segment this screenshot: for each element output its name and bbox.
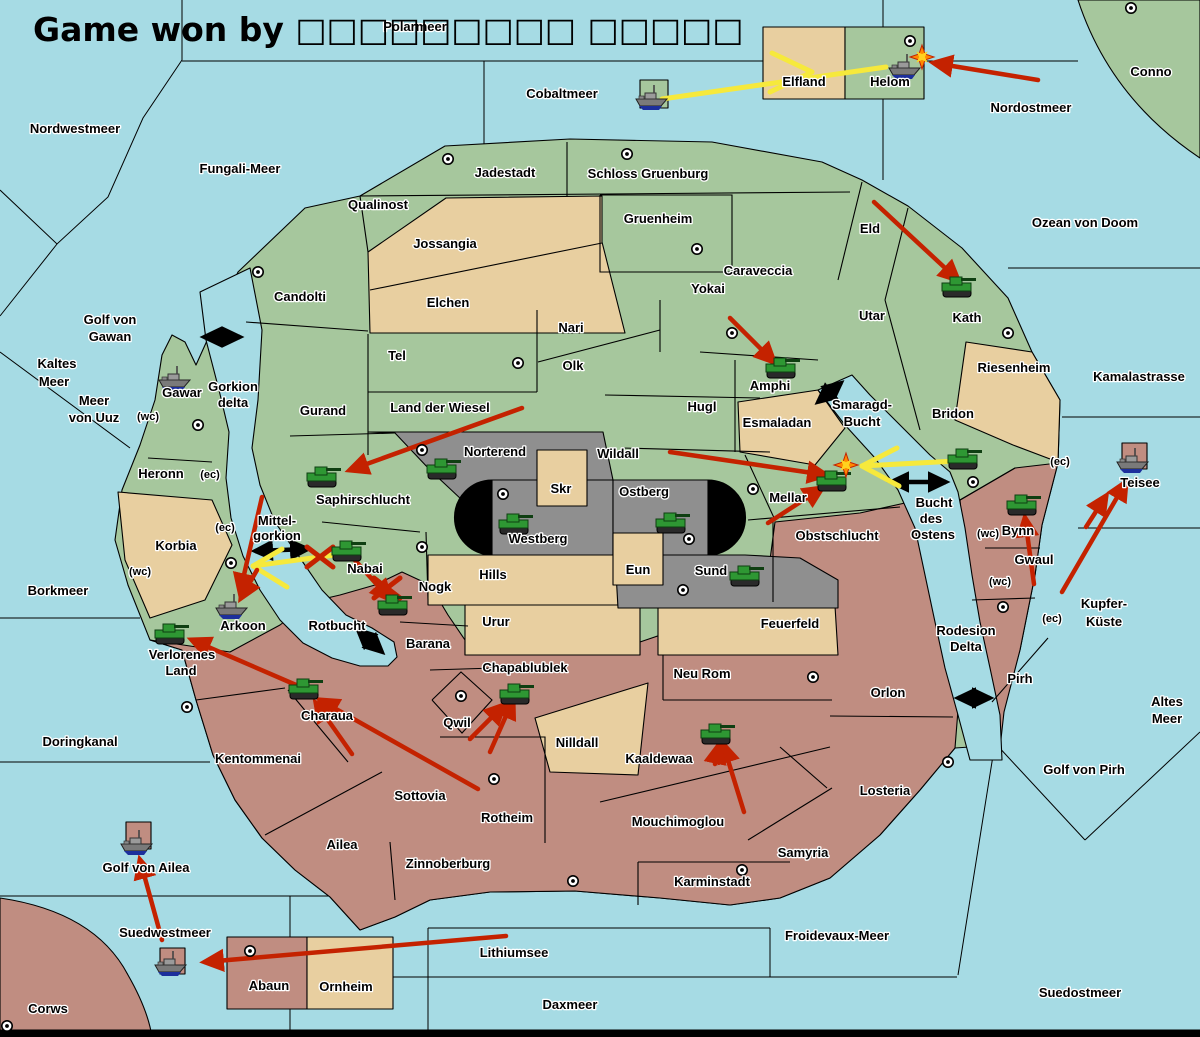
region-skr-box — [537, 450, 587, 506]
label-suedwestmeer: Suedwestmeer — [119, 925, 211, 940]
supply-center-gruenheim — [692, 244, 702, 254]
label-bucht: Bucht — [916, 495, 954, 510]
supply-center-westberg — [498, 489, 508, 499]
supply-center-yokai — [727, 328, 737, 338]
label-von-uuz: von Uuz — [69, 410, 120, 425]
label-feuerfeld: Feuerfeld — [761, 616, 820, 631]
label-froidevaux-meer: Froidevaux-Meer — [785, 928, 889, 943]
label-gorkion: Gorkion — [208, 379, 258, 394]
label-gorkion: gorkion — [253, 528, 301, 543]
label-daxmeer: Daxmeer — [543, 997, 598, 1012]
label-ostens: Ostens — [911, 527, 955, 542]
label-urur: Urur — [482, 614, 509, 629]
label-ozean-von-doom: Ozean von Doom — [1032, 215, 1138, 230]
label-abaun: Abaun — [249, 978, 290, 993]
label-altes: Altes — [1151, 694, 1183, 709]
label-korbia: Korbia — [155, 538, 197, 553]
label-eld: Eld — [860, 221, 880, 236]
label-cobaltmeer: Cobaltmeer — [526, 86, 598, 101]
label-kentommenai: Kentommenai — [215, 751, 301, 766]
label-golf-von-pirh: Golf von Pirh — [1043, 762, 1125, 777]
label-kaaldewaa: Kaaldewaa — [625, 751, 693, 766]
label-candolti: Candolti — [274, 289, 326, 304]
label-barana: Barana — [406, 636, 451, 651]
label-fungali-meer: Fungali-Meer — [200, 161, 281, 176]
label-meer: Meer — [39, 374, 69, 389]
supply-center-corws — [2, 1021, 12, 1031]
supply-center-helom — [905, 36, 915, 46]
supply-center-neu-rom — [808, 672, 818, 682]
supply-center-qwil — [456, 691, 466, 701]
label-heronn: Heronn — [138, 466, 184, 481]
region-hills — [428, 555, 618, 605]
supply-center-candolti — [253, 267, 263, 277]
label-bynn: Bynn — [1002, 523, 1035, 538]
label-corws: Corws — [28, 1001, 68, 1016]
label-esmaladan: Esmaladan — [743, 415, 812, 430]
label-nogk: Nogk — [419, 579, 452, 594]
supply-center-pirh — [998, 602, 1008, 612]
supply-center-rotheim — [489, 774, 499, 784]
label-mittel: Mittel- — [258, 513, 296, 528]
label-wc: (wc) — [129, 566, 151, 578]
label-lithiumsee: Lithiumsee — [480, 945, 549, 960]
label-nilldall: Nilldall — [556, 735, 599, 750]
label-gwaul: Gwaul — [1014, 552, 1053, 567]
label-tel: Tel — [388, 348, 406, 363]
label-suedostmeer: Suedostmeer — [1039, 985, 1121, 1000]
supply-center-sund — [678, 585, 688, 595]
label-ec: (ec) — [215, 522, 235, 534]
label-gawar: Gawar — [162, 385, 202, 400]
label-nordostmeer: Nordostmeer — [991, 100, 1072, 115]
game-map-screen: PolarmeerNordwestmeerFungali-MeerCobaltm… — [0, 0, 1200, 1037]
label-wildall: Wildall — [597, 446, 639, 461]
label-teisee: Teisee — [1120, 475, 1160, 490]
label-kaltes: Kaltes — [37, 356, 76, 371]
label-caraveccia: Caraveccia — [724, 263, 793, 278]
label-obstschlucht: Obstschlucht — [795, 528, 879, 543]
label-wc: (wc) — [977, 528, 999, 540]
supply-center-abaun — [245, 946, 255, 956]
label-ec: (ec) — [1042, 613, 1062, 625]
label-olk: Olk — [563, 358, 585, 373]
supply-center-schloss-gruenburg — [622, 149, 632, 159]
label-des: des — [920, 511, 942, 526]
label-nordwestmeer: Nordwestmeer — [30, 121, 120, 136]
label-elfland: Elfland — [782, 74, 825, 89]
label-doringkanal: Doringkanal — [42, 734, 117, 749]
label-land-der-wiesel: Land der Wiesel — [390, 400, 490, 415]
supply-center-zinnoberburg — [568, 876, 578, 886]
label-riesenheim: Riesenheim — [978, 360, 1051, 375]
label-ostberg: Ostberg — [619, 484, 669, 499]
label-amphi: Amphi — [750, 378, 790, 393]
label-ec: (ec) — [200, 469, 220, 481]
label-ailea: Ailea — [326, 837, 358, 852]
label-rotbucht: Rotbucht — [308, 618, 366, 633]
label-verlorenes: Verlorenes — [149, 647, 216, 662]
label-losteria: Losteria — [860, 783, 911, 798]
label-ec: (ec) — [1050, 456, 1070, 468]
label-schloss-gruenburg: Schloss Gruenburg — [588, 166, 709, 181]
label-neu-rom: Neu Rom — [673, 666, 730, 681]
label-wc: (wc) — [137, 411, 159, 423]
supply-center-tel — [513, 358, 523, 368]
region-bottom-bar — [0, 1030, 1200, 1037]
label-skr: Skr — [551, 481, 572, 496]
region-eun-box — [613, 533, 663, 585]
supply-center-arkoon — [226, 558, 236, 568]
label-arkoon: Arkoon — [220, 618, 266, 633]
label-gruenheim: Gruenheim — [624, 211, 693, 226]
label-sund: Sund — [695, 563, 728, 578]
label-rotheim: Rotheim — [481, 810, 533, 825]
label-wc: (wc) — [989, 576, 1011, 588]
label-mouchimoglou: Mouchimoglou — [632, 814, 724, 829]
label-jossangia: Jossangia — [413, 236, 477, 251]
supply-center-bridon — [968, 477, 978, 487]
label-hills: Hills — [479, 567, 506, 582]
label-kath: Kath — [953, 310, 982, 325]
label-utar: Utar — [859, 308, 885, 323]
label-smaragd: Smaragd- — [832, 397, 892, 412]
label-meer: Meer — [79, 393, 109, 408]
label-borkmeer: Borkmeer — [28, 583, 89, 598]
label-ornheim: Ornheim — [319, 979, 372, 994]
label-meer: Meer — [1152, 711, 1182, 726]
label-gawan: Gawan — [89, 329, 132, 344]
label-elchen: Elchen — [427, 295, 470, 310]
region-abaun-box — [227, 937, 307, 1009]
label-conno: Conno — [1130, 64, 1171, 79]
label-qualinost: Qualinost — [348, 197, 409, 212]
game-result-title: Game won by □□□□□□□□□ □□□□□ — [33, 10, 743, 49]
label-bridon: Bridon — [932, 406, 974, 421]
label-hugl: Hugl — [688, 399, 717, 414]
label-sottovia: Sottovia — [394, 788, 446, 803]
supply-center-jadestadt — [443, 154, 453, 164]
label-qwil: Qwil — [443, 715, 470, 730]
label-chapablublek: Chapablublek — [482, 660, 568, 675]
supply-center-kath — [1003, 328, 1013, 338]
label-mellar: Mellar — [769, 490, 807, 505]
label-norterend: Norterend — [464, 444, 526, 459]
label-orlon: Orlon — [871, 685, 906, 700]
label-nari: Nari — [558, 320, 583, 335]
label-k-ste: Küste — [1086, 614, 1122, 629]
label-karminstadt: Karminstadt — [674, 874, 751, 889]
supply-center-losteria — [943, 757, 953, 767]
label-golf-von: Golf von — [84, 312, 137, 327]
region-urur — [465, 605, 640, 655]
supply-center-hills — [417, 542, 427, 552]
game-map: PolarmeerNordwestmeerFungali-MeerCobaltm… — [0, 0, 1200, 1037]
supply-center-gawar — [193, 420, 203, 430]
label-charaua: Charaua — [301, 708, 354, 723]
label-bucht: Bucht — [844, 414, 882, 429]
label-zinnoberburg: Zinnoberburg — [406, 856, 491, 871]
label-kupfer: Kupfer- — [1081, 596, 1127, 611]
supply-center-conno — [1126, 3, 1136, 13]
supply-center-verlorenes-land — [182, 702, 192, 712]
supply-center-ostberg — [684, 534, 694, 544]
label-rodesion: Rodesion — [936, 623, 995, 638]
supply-center-norterend — [417, 445, 427, 455]
label-gurand: Gurand — [300, 403, 346, 418]
label-delta: Delta — [950, 639, 983, 654]
label-nabai: Nabai — [347, 561, 382, 576]
label-westberg: Westberg — [509, 531, 568, 546]
label-jadestadt: Jadestadt — [475, 165, 536, 180]
label-pirh: Pirh — [1007, 671, 1032, 686]
label-helom: Helom — [870, 74, 910, 89]
label-samyria: Samyria — [778, 845, 829, 860]
label-land: Land — [165, 663, 196, 678]
label-yokai: Yokai — [691, 281, 725, 296]
label-kamalastrasse: Kamalastrasse — [1093, 369, 1185, 384]
supply-center-mellar — [748, 484, 758, 494]
label-delta: delta — [218, 395, 249, 410]
label-eun: Eun — [626, 562, 651, 577]
label-golf-von-ailea: Golf von Ailea — [103, 860, 191, 875]
label-saphirschlucht: Saphirschlucht — [316, 492, 411, 507]
